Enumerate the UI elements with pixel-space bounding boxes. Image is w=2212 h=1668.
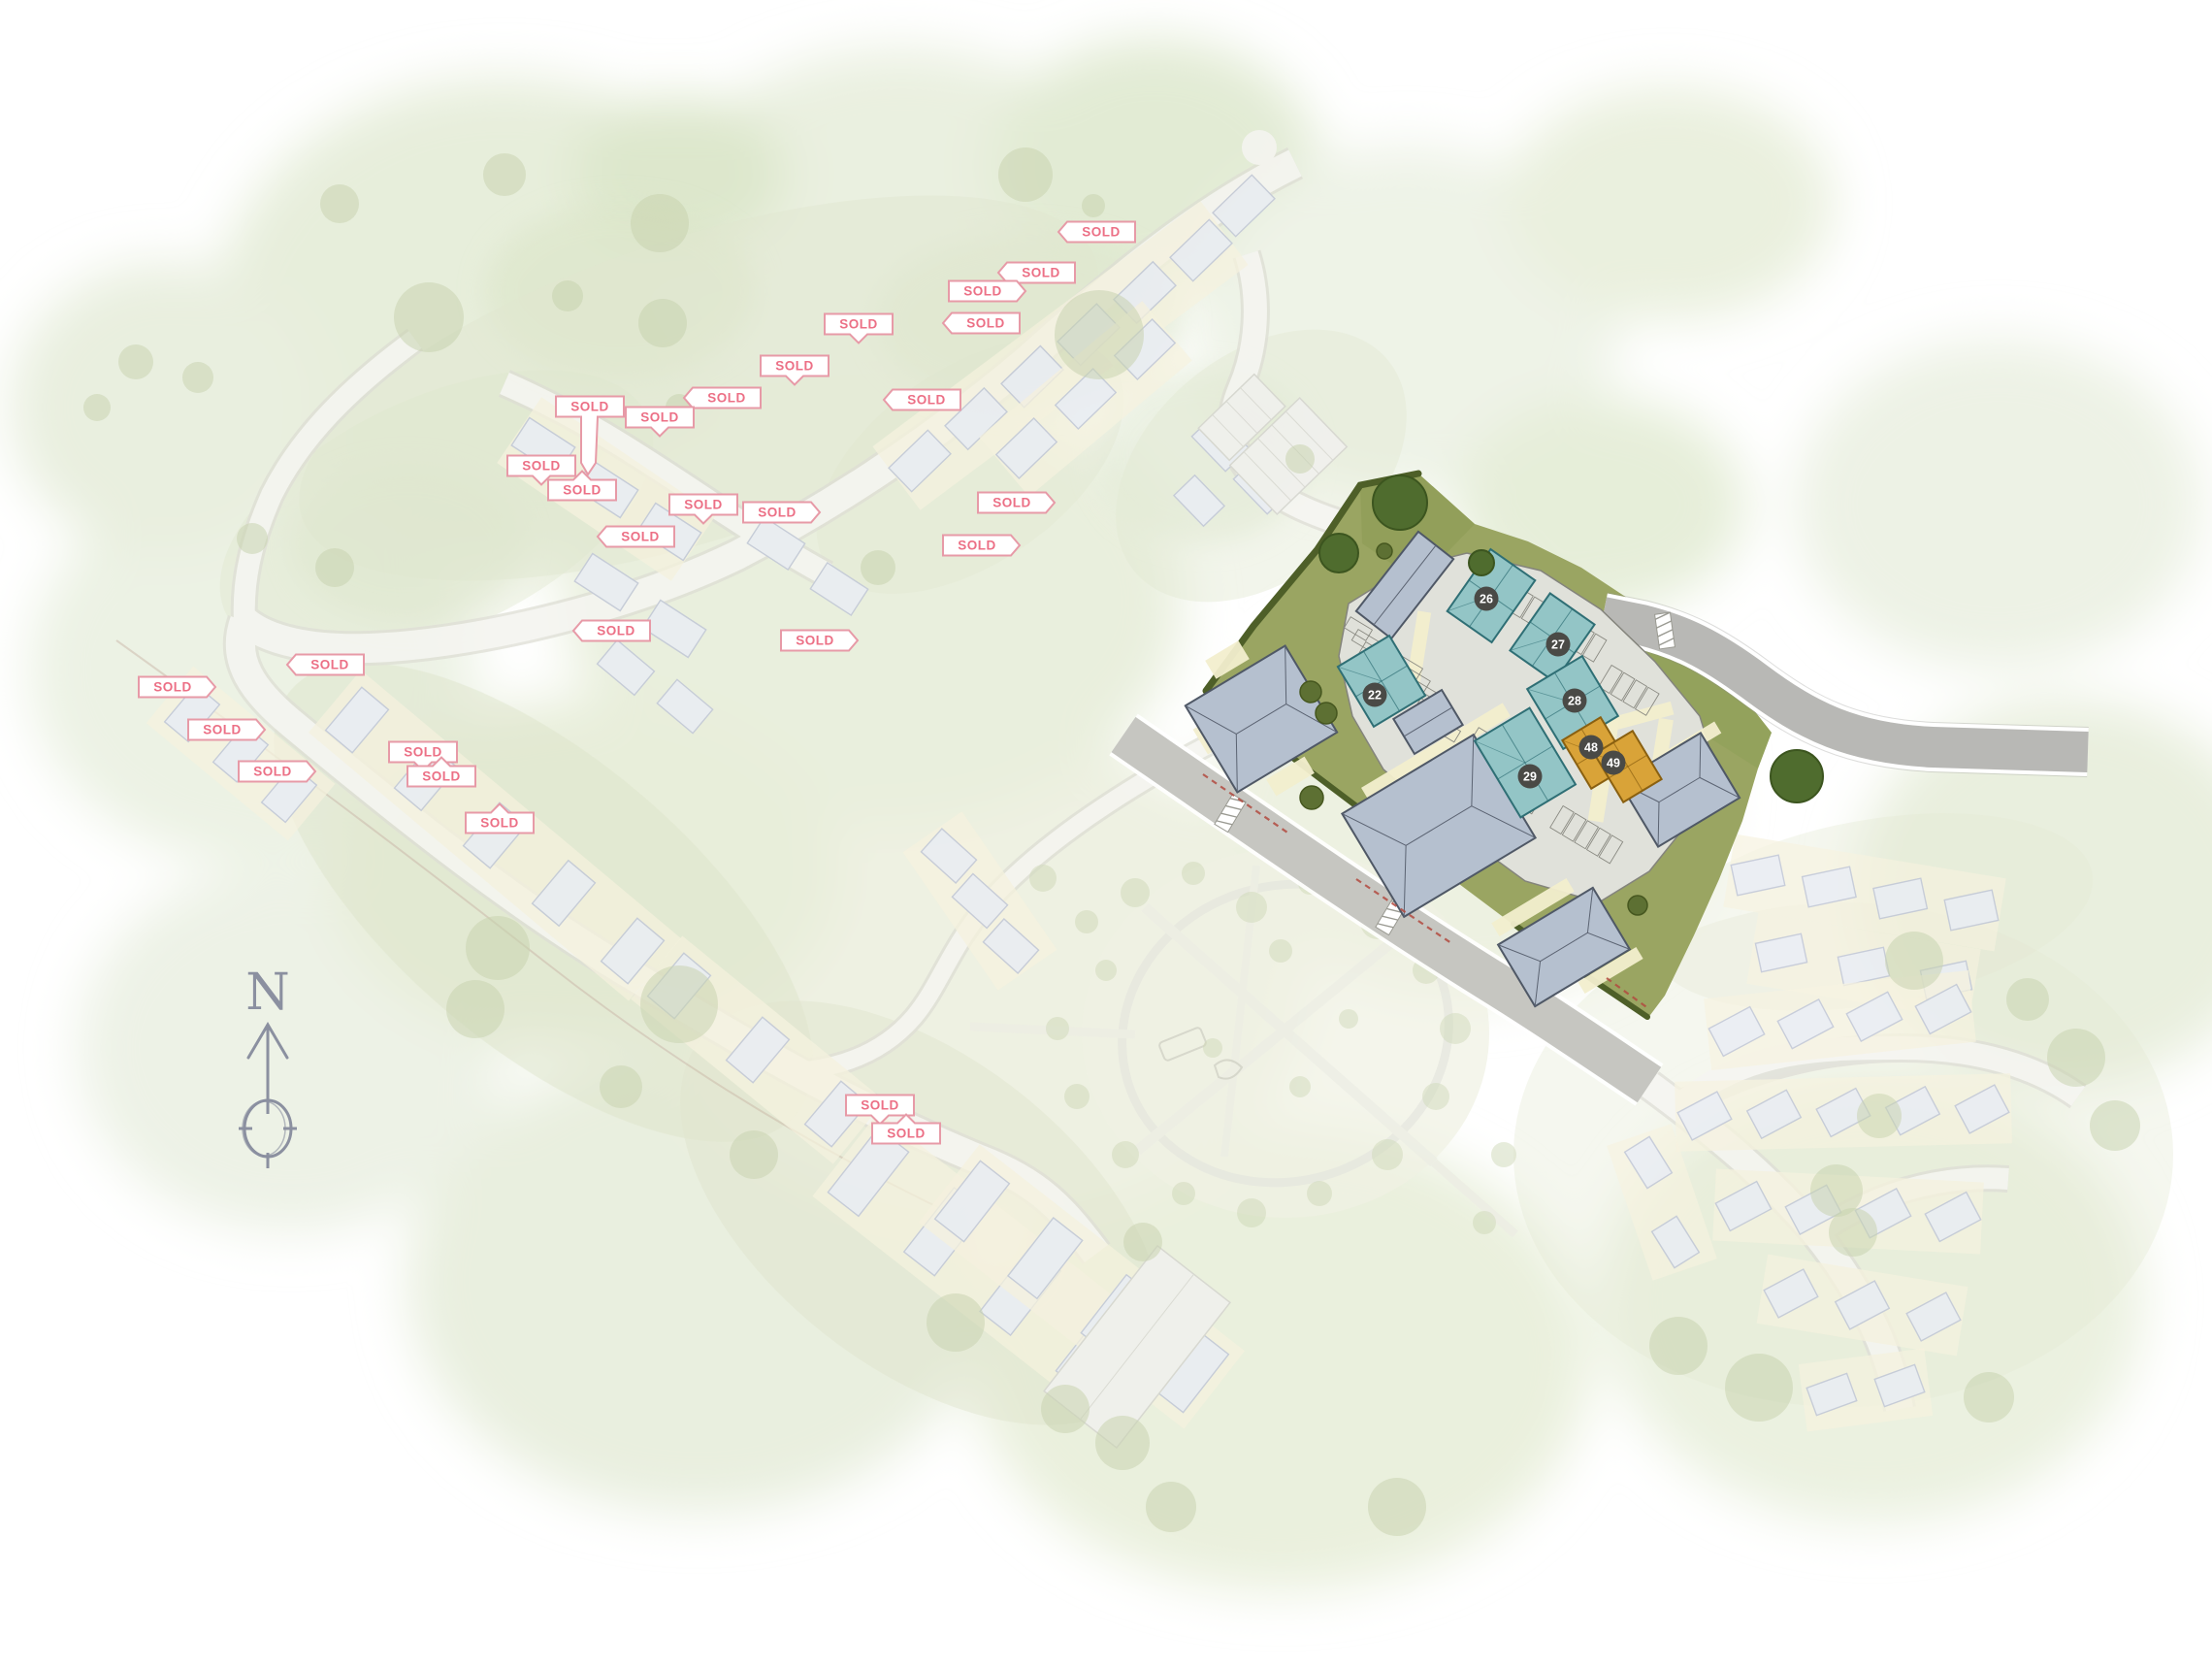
pale-tree	[998, 147, 1053, 202]
sold-badge-label: SOLD	[522, 459, 561, 474]
park-tree	[1237, 1198, 1266, 1227]
park-tree	[1046, 1017, 1069, 1040]
sold-badge-label: SOLD	[621, 530, 660, 544]
park-tree	[1095, 960, 1117, 981]
park-tree	[1307, 1181, 1332, 1206]
sold-badge-label: SOLD	[963, 284, 1002, 299]
sold-badge: SOLD	[743, 503, 820, 523]
pale-tree	[1285, 444, 1315, 474]
pale-tree	[2006, 978, 2049, 1021]
shrub	[1300, 786, 1323, 809]
sold-badge-label: SOLD	[597, 624, 635, 638]
pale-tree	[1146, 1482, 1196, 1532]
sold-badge: SOLD	[239, 762, 315, 782]
pale-tree	[466, 916, 530, 980]
plot-marker-29[interactable]: 29	[1518, 765, 1543, 789]
plot-marker-number: 28	[1568, 694, 1581, 707]
site-plan: SOLDSOLDSOLDSOLDSOLDSOLDSOLDSOLDSOLDSOLD…	[0, 0, 2212, 1668]
pale-tree	[83, 394, 111, 421]
park-tree	[1112, 1141, 1139, 1168]
pale-tree	[638, 299, 687, 347]
park-tree	[1075, 910, 1098, 933]
sold-badge-label: SOLD	[253, 765, 292, 779]
sold-badge-label: SOLD	[966, 316, 1005, 331]
sold-badge: SOLD	[998, 263, 1075, 283]
pale-tree	[1829, 1208, 1877, 1257]
pale-tree	[640, 965, 718, 1043]
plot-marker-26[interactable]: 26	[1475, 587, 1499, 611]
park-tree	[1491, 1142, 1516, 1167]
plot-marker-49[interactable]: 49	[1602, 751, 1626, 775]
sold-badge: SOLD	[781, 631, 858, 651]
park-tree	[1121, 878, 1150, 907]
pale-tree	[1725, 1354, 1793, 1422]
compass-north-label: N	[245, 964, 290, 1022]
pale-tree	[730, 1130, 778, 1179]
pale-tree	[1055, 290, 1144, 379]
park-tree	[1339, 1009, 1358, 1029]
sold-badge-label: SOLD	[796, 634, 834, 648]
sold-badge: SOLD	[188, 720, 265, 740]
dark-tree	[1469, 550, 1494, 575]
pale-tree	[631, 194, 689, 252]
plot-marker-number: 49	[1607, 756, 1620, 769]
sold-badge: SOLD	[884, 390, 960, 410]
pale-tree	[118, 344, 153, 379]
site-plan-canvas: SOLDSOLDSOLDSOLDSOLDSOLDSOLDSOLDSOLDSOLD…	[0, 0, 2212, 1668]
sold-badge-label: SOLD	[153, 680, 192, 695]
dark-tree	[1319, 534, 1358, 572]
sold-badge-label: SOLD	[887, 1127, 926, 1141]
pale-tree	[1082, 194, 1105, 217]
sold-badge: SOLD	[978, 493, 1055, 513]
pale-tree	[1964, 1372, 2014, 1423]
pale-tree	[1885, 932, 1943, 990]
pale-tree	[1857, 1094, 1902, 1138]
park-tree	[1269, 939, 1292, 963]
park-tree	[1203, 1038, 1222, 1058]
pale-tree	[237, 523, 268, 554]
plot-marker-number: 22	[1368, 688, 1382, 702]
pale-tree	[927, 1293, 985, 1352]
dark-tree	[1373, 475, 1427, 530]
sold-badge: SOLD	[573, 621, 650, 641]
sold-badge: SOLD	[139, 677, 215, 698]
park-tree	[1440, 1013, 1471, 1044]
pale-tree	[1041, 1385, 1090, 1433]
sold-badge: SOLD	[684, 388, 761, 409]
sold-badge: SOLD	[943, 536, 1020, 556]
sold-badge: SOLD	[598, 527, 674, 547]
sold-badge-label: SOLD	[861, 1098, 899, 1113]
sold-badge-label: SOLD	[480, 816, 519, 831]
sold-badge-label: SOLD	[570, 400, 609, 414]
pale-tree	[446, 980, 504, 1038]
park-tree	[1029, 865, 1057, 892]
sold-badge-label: SOLD	[775, 359, 814, 374]
shrub	[1628, 896, 1647, 915]
sold-badge-label: SOLD	[310, 658, 349, 672]
pale-tree	[182, 362, 213, 393]
sold-badge-label: SOLD	[1022, 266, 1060, 280]
pale-tree	[861, 550, 895, 585]
sold-badge: SOLD	[1058, 222, 1135, 243]
pale-tree	[320, 184, 359, 223]
sold-badge-label: SOLD	[992, 496, 1031, 510]
plot-marker-number: 29	[1523, 769, 1537, 783]
pale-tree	[2047, 1029, 2105, 1087]
shrub	[1300, 681, 1321, 703]
plot-marker-22[interactable]: 22	[1363, 683, 1387, 707]
sold-badge-label: SOLD	[640, 410, 679, 425]
pale-tree	[1649, 1317, 1708, 1375]
pale-tree	[1368, 1478, 1426, 1536]
sold-badge-label: SOLD	[758, 506, 797, 520]
pale-tree	[483, 153, 526, 196]
park-tree	[1372, 1139, 1403, 1170]
sold-badge: SOLD	[287, 655, 364, 675]
sold-badge-label: SOLD	[684, 498, 723, 512]
pale-tree	[552, 280, 583, 311]
pale-tree	[600, 1065, 642, 1108]
plot-marker-28[interactable]: 28	[1563, 689, 1587, 713]
sold-badge: SOLD	[943, 313, 1020, 334]
pale-tree	[2090, 1100, 2140, 1151]
plot-marker-number: 48	[1584, 740, 1598, 754]
park-tree	[1182, 862, 1205, 885]
plot-marker-number: 27	[1551, 638, 1565, 651]
park-tree	[1289, 1076, 1311, 1097]
sold-badge-label: SOLD	[907, 393, 946, 408]
park-tree	[1064, 1084, 1090, 1109]
pale-tree	[1095, 1416, 1150, 1470]
sold-badge-label: SOLD	[707, 391, 746, 406]
park-tree	[1236, 892, 1267, 923]
dark-tree	[1771, 750, 1823, 802]
pale-tree	[394, 282, 464, 352]
sold-badge-label: SOLD	[563, 483, 602, 498]
plot-marker-48[interactable]: 48	[1579, 736, 1604, 760]
sold-badge-label: SOLD	[404, 745, 442, 760]
sold-badge: SOLD	[949, 281, 1025, 302]
park-tree	[1422, 1083, 1449, 1110]
sold-badge-label: SOLD	[1082, 225, 1121, 240]
shrub	[1316, 703, 1337, 724]
pale-tree	[1123, 1223, 1162, 1261]
park-tree	[1172, 1182, 1195, 1205]
sold-badge-label: SOLD	[203, 723, 242, 737]
plot-marker-number: 26	[1480, 592, 1493, 605]
plot-marker-27[interactable]: 27	[1546, 633, 1571, 657]
sold-badge-label: SOLD	[422, 769, 461, 784]
shrub	[1377, 543, 1392, 559]
sold-badge-label: SOLD	[958, 539, 996, 553]
sold-badge-label: SOLD	[839, 317, 878, 332]
pale-tree	[315, 548, 354, 587]
park-tree	[1473, 1211, 1496, 1234]
